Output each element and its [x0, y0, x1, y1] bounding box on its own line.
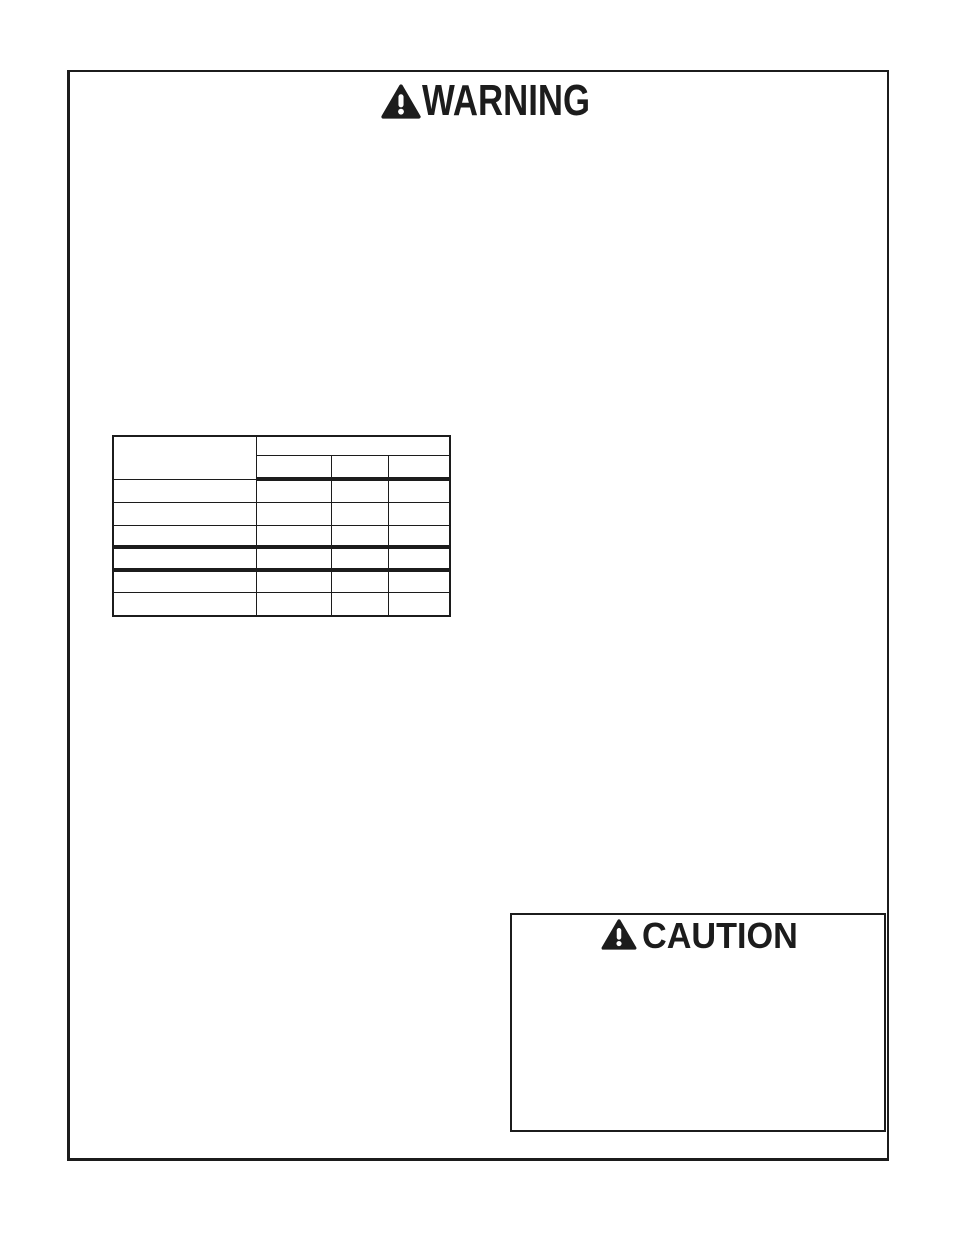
table-cell [388, 592, 450, 616]
table-row [113, 479, 450, 502]
page-border: WARNING [67, 70, 889, 1161]
table-cell [331, 547, 388, 570]
warning-heading: WARNING [422, 81, 590, 121]
table-row [113, 592, 450, 616]
scanned-manual-page: { "document": { "warning": { "title": "W… [0, 0, 954, 1235]
table-spanned-header-cell [256, 436, 450, 455]
table-cell [388, 502, 450, 525]
table-cell [113, 479, 256, 502]
table-cell [388, 570, 450, 592]
table-cell [256, 592, 331, 616]
table-subheader-cell [331, 455, 388, 479]
table-subheader-cell [388, 455, 450, 479]
caution-box: CAUTION [510, 913, 886, 1132]
table-cell [331, 479, 388, 502]
table-cell [388, 547, 450, 570]
table-corner-cell [113, 436, 256, 479]
empty-spec-table [112, 435, 451, 617]
table-cell [113, 547, 256, 570]
table-cell [256, 570, 331, 592]
table-row [113, 570, 450, 592]
table-cell [113, 570, 256, 592]
table-cell [388, 479, 450, 502]
table-cell [388, 525, 450, 547]
caution-triangle-icon [600, 919, 638, 950]
table-cell [331, 525, 388, 547]
table-cell [113, 525, 256, 547]
table-cell [256, 479, 331, 502]
caution-heading: CAUTION [642, 920, 798, 952]
table-row [113, 547, 450, 570]
table-cell [331, 502, 388, 525]
table-cell [331, 570, 388, 592]
table-header-row-1 [113, 436, 450, 455]
table-cell [256, 525, 331, 547]
table-cell [113, 502, 256, 525]
table-row [113, 502, 450, 525]
table-subheader-cell [256, 455, 331, 479]
table-cell [256, 547, 331, 570]
table-cell [113, 592, 256, 616]
table-row [113, 525, 450, 547]
table-cell [256, 502, 331, 525]
warning-triangle-icon [381, 84, 421, 119]
table-cell [331, 592, 388, 616]
